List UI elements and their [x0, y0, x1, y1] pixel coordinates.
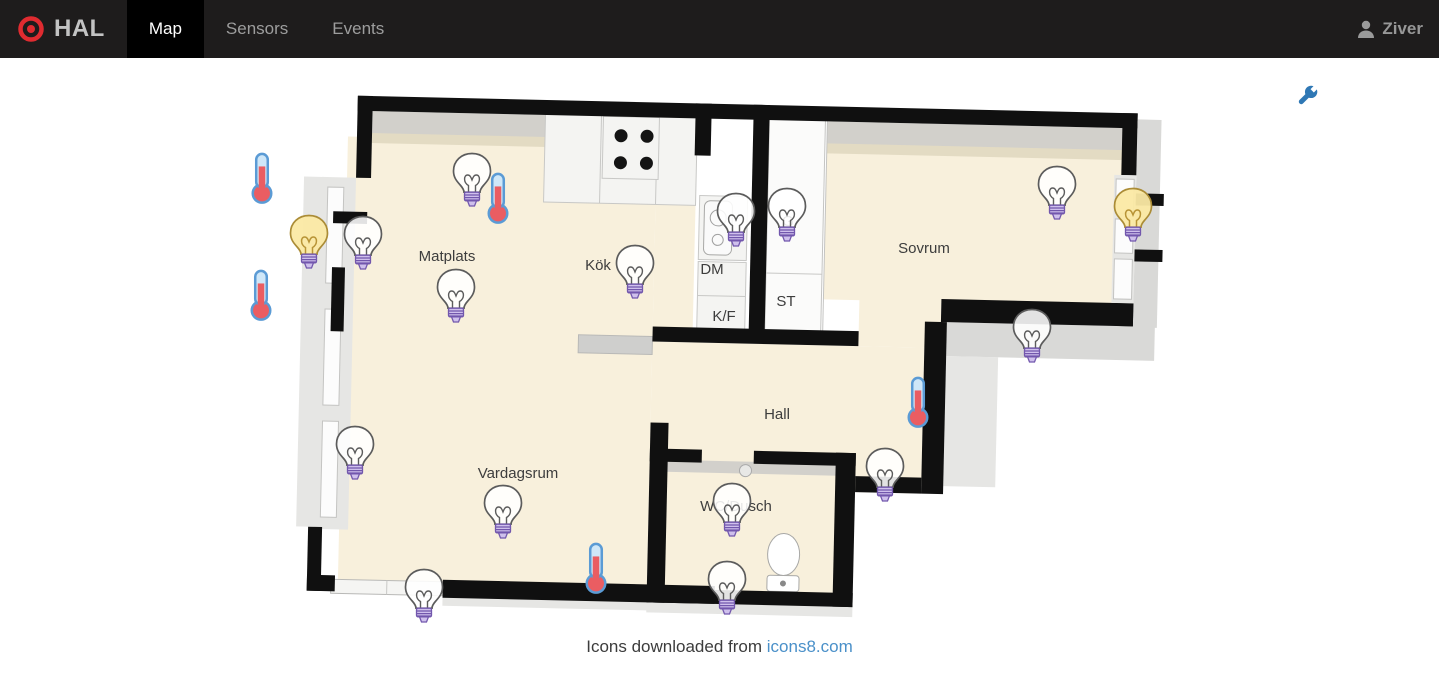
- room-label-kok: Kök: [585, 257, 611, 274]
- brand-title: HAL: [54, 15, 105, 43]
- room-label-st: ST: [776, 293, 795, 310]
- settings-wrench-button[interactable]: [1293, 82, 1321, 110]
- light-off-sensor-icon[interactable]: [406, 570, 443, 623]
- hal-logo-icon: [16, 14, 46, 44]
- user-menu[interactable]: Ziver: [1356, 0, 1423, 58]
- temperature-sensor-icon[interactable]: [909, 378, 927, 427]
- temperature-sensor-icon[interactable]: [253, 154, 271, 203]
- tab-events[interactable]: Events: [310, 0, 406, 58]
- room-label-sovrum: Sovrum: [898, 240, 950, 257]
- room-label-hall: Hall: [764, 406, 790, 423]
- tab-sensors[interactable]: Sensors: [204, 0, 310, 58]
- attribution-footer: Icons downloaded from icons8.com: [0, 637, 1439, 657]
- temperature-sensor-icon[interactable]: [252, 271, 270, 320]
- attribution-text: Icons downloaded from: [586, 637, 762, 656]
- room-label-dm: DM: [700, 261, 723, 278]
- navbar: HAL Map Sensors Events Ziver: [0, 0, 1439, 58]
- room-label-matplats: Matplats: [419, 248, 476, 265]
- temperature-sensor-icon[interactable]: [489, 174, 507, 223]
- icons8-link[interactable]: icons8.com: [767, 637, 853, 656]
- light-off-sensor-icon[interactable]: [867, 449, 904, 502]
- wrench-icon: [1293, 82, 1321, 110]
- user-icon: [1356, 19, 1376, 39]
- brand-home-link[interactable]: HAL: [0, 0, 127, 58]
- room-label-vardagsrum: Vardagsrum: [478, 465, 559, 482]
- temperature-sensor-icon[interactable]: [587, 544, 605, 593]
- tab-map[interactable]: Map: [127, 0, 204, 58]
- user-name: Ziver: [1382, 19, 1423, 39]
- room-label-kf: K/F: [712, 308, 735, 325]
- main-tabs: Map Sensors Events: [127, 0, 406, 58]
- floorplan-map: Matplats Kök DM K/F ST G Sovrum Hall Var…: [0, 0, 1439, 675]
